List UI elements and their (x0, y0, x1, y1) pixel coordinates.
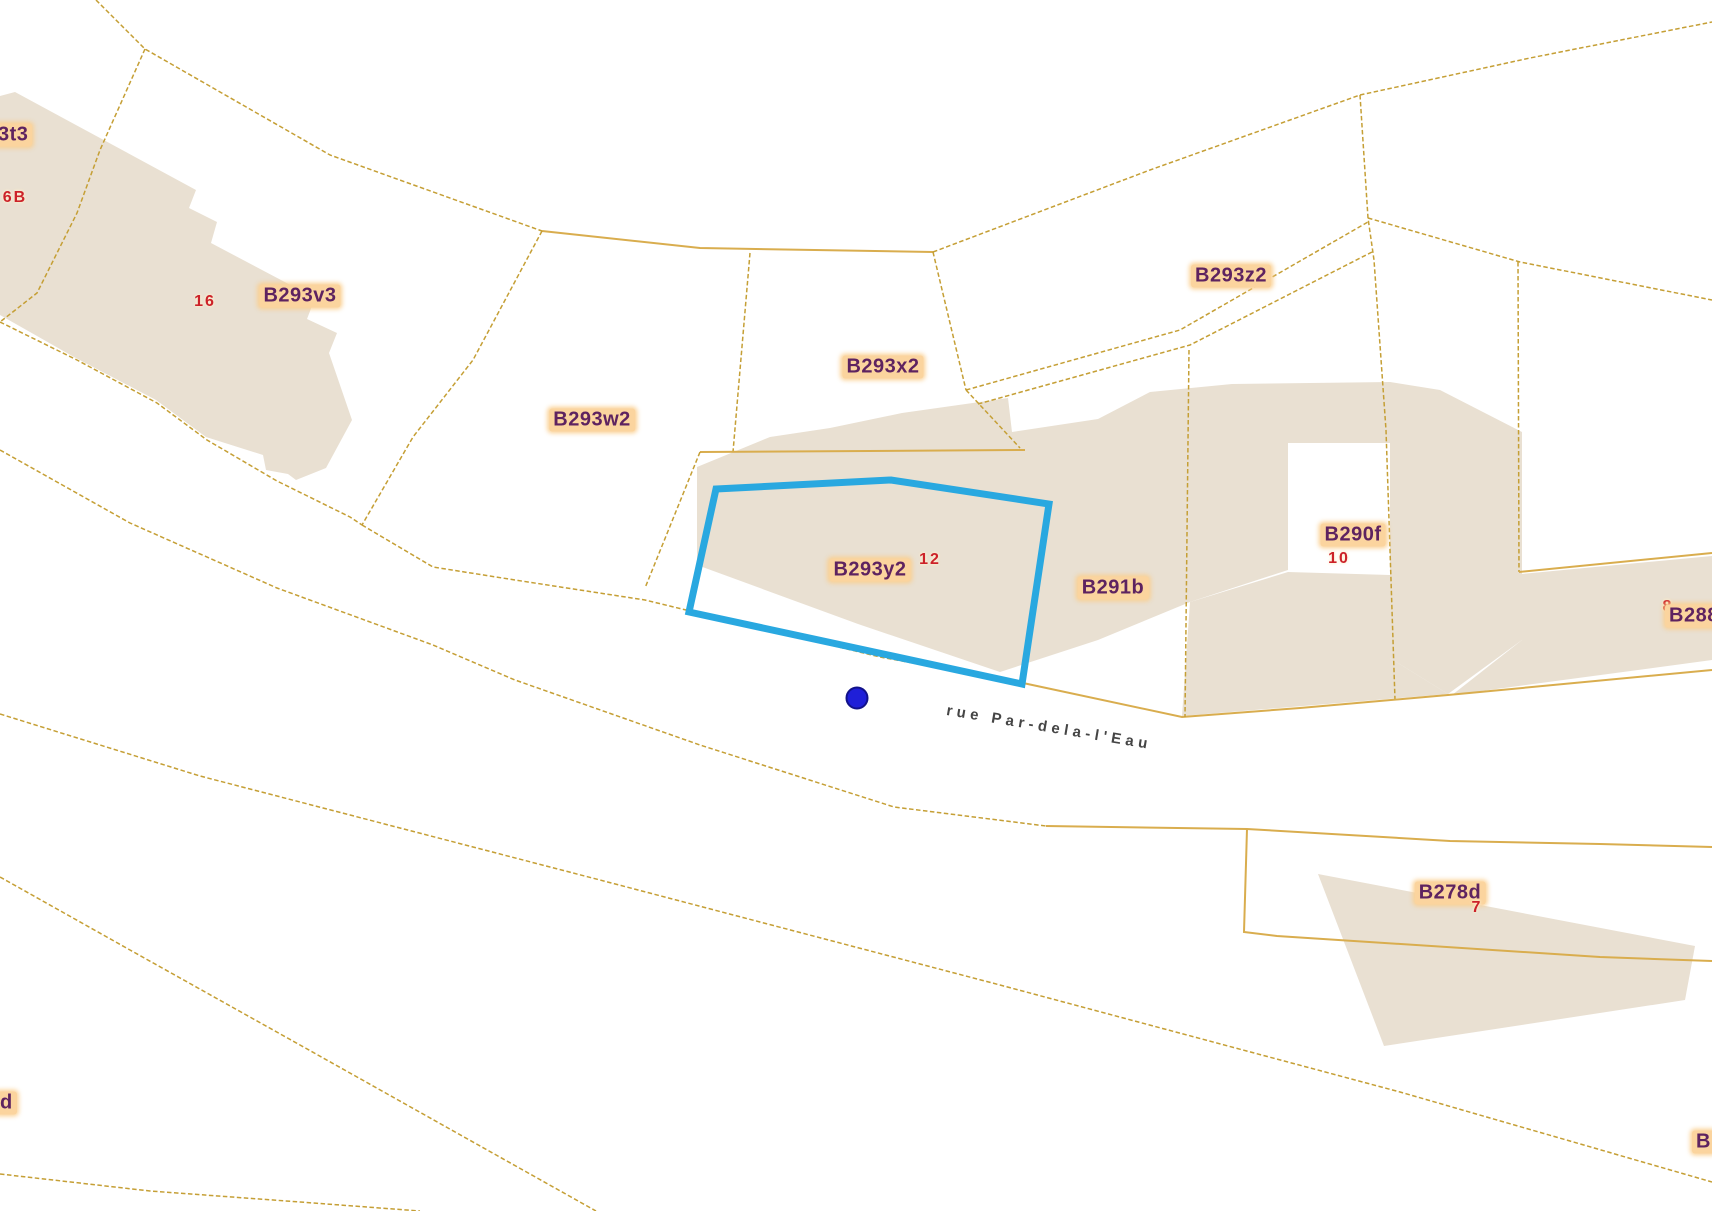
parcel-boundary-l23 (933, 252, 966, 390)
house-12-label: 12 (919, 551, 941, 569)
building-b290f-right-footprint (1390, 382, 1522, 694)
house-6b-label: 6B (3, 189, 27, 207)
parcel-b293z2-label: B293z2 (1191, 265, 1271, 288)
parcel-d-partial-label: d (0, 1092, 17, 1115)
parcel-boundary-l21 (966, 222, 1368, 390)
map-geometry-layer (0, 0, 1712, 1211)
parcel-b293w2-label: B293w2 (549, 409, 635, 432)
parcel-b-partial-label: B (1692, 1131, 1712, 1154)
parcel-boundary-l6 (1368, 218, 1712, 300)
house-10-label: 10 (1328, 550, 1350, 568)
parcel-boundary-l17 (0, 1174, 420, 1211)
parcel-boundary-l22 (978, 252, 1372, 404)
building-central-footprint (697, 398, 1098, 672)
parcel-boundary-l14b (1046, 826, 1712, 847)
parcel-b293v3-label: B293v3 (259, 285, 340, 308)
parcel-b293x2-label: B293x2 (842, 356, 923, 379)
parcel-boundary-l9 (645, 452, 700, 588)
parcel-boundary-l7 (733, 253, 750, 452)
house-7-label: 7 (1472, 899, 1483, 917)
parcel-boundary-l16 (0, 877, 596, 1211)
parcel-b293y2-label: B293y2 (829, 559, 910, 582)
parcel-b288-partial-label: B288 (1665, 605, 1712, 628)
parcel-b291b-label: B291b (1078, 577, 1149, 600)
parcel-b290f-label: B290f (1321, 524, 1386, 547)
house-16-label: 16 (194, 293, 216, 311)
location-marker-dot[interactable] (846, 687, 869, 710)
parcel-b293t3-partial-label: 3t3 (0, 124, 32, 147)
parcel-boundary-l5 (1360, 22, 1712, 95)
parcel-boundary-l2 (542, 231, 933, 252)
parcel-boundary-l10 (362, 231, 542, 525)
map-canvas[interactable]: 3t36B16B293v3B293w2B293x2B293z2B293y212B… (0, 0, 1712, 1211)
building-b278d-footprint (1318, 874, 1695, 1046)
parcel-boundary-l3 (933, 95, 1360, 252)
